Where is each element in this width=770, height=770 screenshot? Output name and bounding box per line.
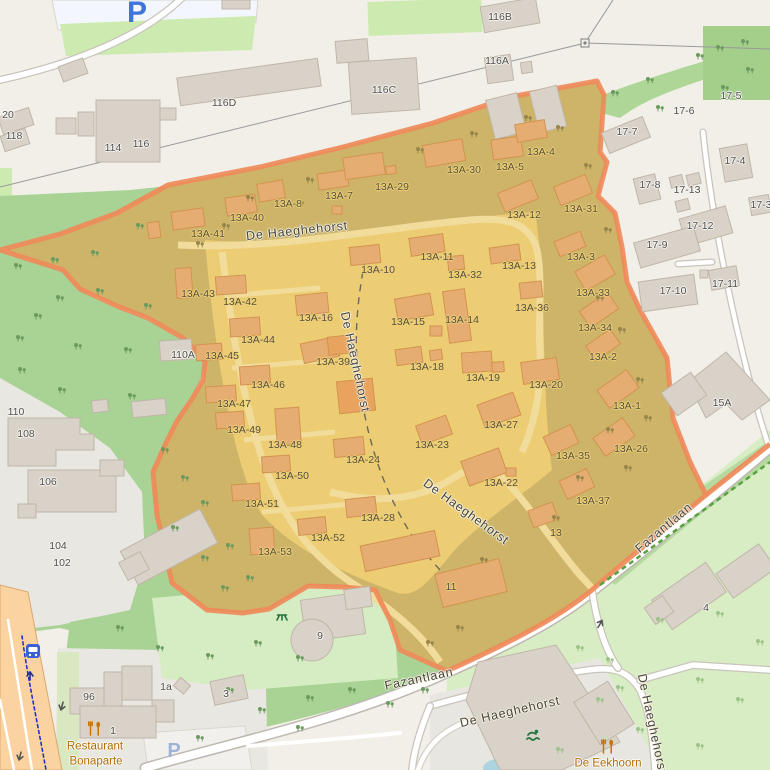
map-svg xyxy=(0,0,770,770)
map-canvas[interactable]: De HaeghehorstDe HaeghehorstDe Haeghehor… xyxy=(0,0,770,770)
grass-area xyxy=(0,168,12,198)
forest-area xyxy=(703,26,770,100)
bus-stop-icon xyxy=(26,644,40,658)
grass-area xyxy=(367,0,482,36)
